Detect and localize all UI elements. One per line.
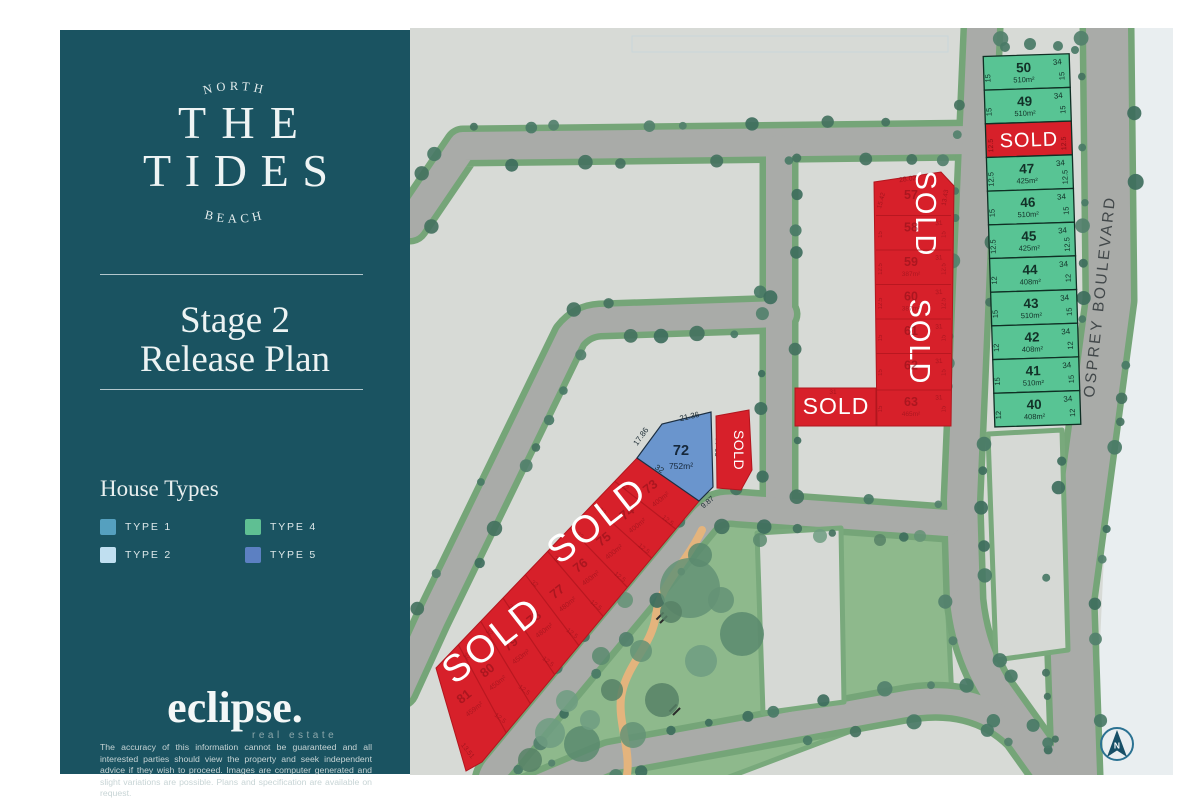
- lot-60-number: 60: [904, 290, 918, 304]
- park-tree-icon: [645, 683, 679, 717]
- lot-43-number: 43: [1023, 296, 1039, 311]
- tree-icon: [544, 415, 554, 425]
- park-tree-icon: [720, 612, 764, 656]
- tree-icon: [978, 568, 992, 582]
- tree-icon: [785, 156, 794, 165]
- tree-icon: [758, 370, 765, 377]
- tree-icon: [624, 329, 638, 343]
- lot-40-dim-front: 34: [1063, 394, 1073, 404]
- tree-icon: [754, 402, 767, 415]
- lot-50-number: 50: [1016, 60, 1031, 75]
- north-letter: N: [1114, 741, 1120, 751]
- lot-50-area: 510m²: [1013, 75, 1035, 85]
- tree-icon: [859, 153, 872, 166]
- tree-icon: [993, 653, 1007, 667]
- lot-44-dim-left: 12: [990, 276, 999, 285]
- logo-north-text: NORTH: [202, 79, 269, 97]
- tree-icon: [487, 521, 502, 536]
- lot-47-dim-right: 12.5: [1060, 170, 1069, 185]
- osprey-lot-column: 50510m²34151549510m²341515SOLD12.512.547…: [983, 54, 1081, 427]
- lot-48-sold-label: SOLD: [999, 129, 1058, 153]
- park-tree-icon: [556, 690, 578, 712]
- tree-icon: [763, 290, 777, 304]
- tree-icon: [790, 489, 805, 504]
- tree-icon: [850, 726, 861, 737]
- tree-icon: [470, 123, 478, 131]
- tree-icon: [817, 694, 829, 706]
- tree-icon: [1107, 440, 1122, 455]
- tree-icon: [710, 155, 723, 168]
- divider-line: [100, 274, 363, 275]
- park-tree-icon: [580, 710, 600, 730]
- lot-50-dim-right: 15: [1057, 72, 1066, 81]
- tree-icon: [757, 471, 769, 483]
- release-plan-page: { "sidebar": { "logo": {"arc_top": "NORT…: [0, 0, 1200, 804]
- legend-swatch-icon: [100, 547, 116, 563]
- tree-icon: [579, 781, 593, 795]
- lot-44-number: 44: [1022, 262, 1038, 277]
- lot-49-dim-left: 15: [984, 108, 993, 117]
- legend-label: TYPE 4: [270, 521, 317, 533]
- legend-swatch-icon: [245, 519, 261, 535]
- sold-label: SOLD: [909, 171, 941, 258]
- tree-icon: [591, 669, 601, 679]
- tree-icon: [1075, 218, 1090, 233]
- lot-42-dim-left: 12: [992, 343, 1001, 352]
- tree-icon: [1081, 199, 1088, 206]
- tree-icon: [981, 724, 994, 737]
- tree-icon: [537, 799, 548, 804]
- lot-41-area: 510m²: [1023, 378, 1045, 388]
- lot-46-number: 46: [1020, 195, 1036, 210]
- tree-icon: [714, 519, 729, 534]
- lot-59-dim-right: 12.5: [942, 263, 948, 275]
- house-types-heading: House Types: [100, 476, 219, 502]
- lot-49-dim-right: 15: [1058, 105, 1067, 114]
- tree-icon: [477, 478, 485, 486]
- lot-58-dim-front: 31: [935, 220, 943, 227]
- stage-title: Stage 2 Release Plan: [60, 301, 410, 379]
- tree-icon: [424, 219, 438, 233]
- sold-label: SOLD: [803, 393, 870, 419]
- park-tree-icon: [874, 534, 886, 546]
- tree-icon: [1089, 633, 1102, 646]
- tree-icon: [789, 343, 802, 356]
- tree-icon: [1057, 457, 1066, 466]
- sold-label: SOLD: [731, 430, 747, 470]
- tree-icon: [475, 558, 485, 568]
- lot-59-area: 387m²: [902, 271, 921, 278]
- lot-49-area: 510m²: [1014, 109, 1036, 119]
- lot-60-dim-left: 12.5: [878, 297, 884, 309]
- tree-icon: [415, 166, 429, 180]
- tree-icon: [792, 154, 801, 163]
- tree-icon: [567, 302, 581, 316]
- tree-icon: [790, 246, 803, 259]
- lot-44-area: 408m²: [1020, 277, 1042, 287]
- eclipse-logo: eclipse.: [60, 682, 410, 733]
- lot-47-dim-left: 12.5: [986, 172, 995, 187]
- tree-icon: [790, 224, 802, 236]
- lot-58-number: 58: [904, 221, 918, 235]
- lot-60-dim-right: 12.5: [942, 297, 948, 309]
- tree-icon: [1042, 737, 1053, 748]
- lot-60-dim-front: 31: [935, 289, 943, 296]
- lot-50-dim-front: 34: [1052, 57, 1062, 67]
- logo-the-text: THE: [178, 97, 298, 148]
- legend-swatch-icon: [245, 547, 261, 563]
- tree-icon: [730, 330, 738, 338]
- tree-icon: [877, 681, 892, 696]
- lot-42-number: 42: [1024, 329, 1039, 344]
- lot-45-dim-front: 34: [1058, 226, 1068, 236]
- legend-item-type-2: TYPE 2: [100, 547, 245, 563]
- tree-icon: [881, 118, 890, 127]
- eclipse-tagline: real estate: [252, 730, 337, 741]
- tree-icon: [1098, 555, 1107, 564]
- tree-icon: [411, 602, 425, 616]
- lot-45-number: 45: [1021, 228, 1037, 243]
- lot-42-dim-front: 34: [1061, 327, 1071, 337]
- lot-61-dim-right: 15: [942, 334, 948, 341]
- logo-beach-text: BEACH: [203, 208, 266, 226]
- tree-icon: [954, 100, 965, 111]
- tree-icon: [1071, 46, 1079, 54]
- lot-62-dim-right: 15: [942, 369, 948, 376]
- lot-43-dim-front: 34: [1060, 293, 1070, 303]
- lot-49-number: 49: [1017, 94, 1032, 109]
- lot-50-dim-left: 15: [983, 74, 992, 83]
- tree-icon: [906, 714, 921, 729]
- tree-icon: [822, 116, 834, 128]
- lot-42-dim-right: 12: [1066, 341, 1075, 350]
- tree-icon: [679, 122, 687, 130]
- tree-icon: [501, 776, 516, 791]
- stage-title-line1: Stage 2: [60, 301, 410, 340]
- tree-icon: [1044, 693, 1051, 700]
- tree-icon: [792, 189, 803, 200]
- lot-46-dim-right: 15: [1061, 206, 1070, 215]
- lot-61-dim-left: 15: [878, 334, 884, 341]
- lot-58-dim-left: 15: [878, 231, 884, 238]
- park-tree-icon: [914, 530, 926, 542]
- tree-icon: [742, 711, 753, 722]
- tree-icon: [959, 678, 973, 692]
- lot-71-sold: SOLD: [716, 410, 752, 490]
- tree-icon: [938, 595, 952, 609]
- lot-45-area: 425m²: [1018, 243, 1040, 253]
- lot-63-dim-left: 15: [878, 405, 884, 412]
- lot-63-number: 63: [904, 395, 918, 409]
- tree-icon: [978, 466, 987, 475]
- legend-label: TYPE 2: [125, 549, 172, 561]
- park-tree-icon: [564, 726, 600, 762]
- park-tree-icon: [518, 748, 542, 772]
- park-tree-icon: [592, 647, 610, 665]
- lot-62-dim-left: 15: [878, 369, 884, 376]
- tree-icon: [935, 501, 943, 509]
- lot-47-number: 47: [1019, 161, 1034, 176]
- tree-icon: [705, 719, 713, 727]
- tree-icon: [654, 329, 669, 344]
- legend-item-type-5: TYPE 5: [245, 547, 390, 563]
- tree-icon: [526, 122, 538, 134]
- tree-icon: [1027, 719, 1040, 732]
- divider-line: [100, 389, 363, 390]
- tree-icon: [978, 540, 990, 552]
- lot-58-dim-right: 15: [942, 231, 948, 238]
- lot-40-number: 40: [1026, 397, 1041, 412]
- lot-41-dim-right: 15: [1067, 375, 1076, 384]
- park-tree-icon: [601, 679, 623, 701]
- park-tree-icon: [813, 529, 827, 543]
- tree-icon: [532, 443, 541, 452]
- lot-43-dim-left: 15: [991, 310, 1000, 319]
- tree-icon: [505, 159, 518, 172]
- tree-icon: [1042, 669, 1050, 677]
- tree-icon: [1079, 259, 1088, 268]
- lot-47-dim-front: 34: [1056, 158, 1066, 168]
- tree-icon: [548, 120, 559, 131]
- tree-icon: [1103, 525, 1111, 533]
- sidebar-panel: NORTH THE TIDES BEACH Stage 2 Release Pl…: [60, 30, 410, 774]
- tree-icon: [609, 769, 622, 782]
- lot-40-dim-right: 12: [1068, 409, 1077, 418]
- tree-icon: [432, 569, 441, 578]
- lot-48-dim-left: 12.5: [988, 139, 995, 153]
- lot-72-number: 72: [673, 443, 689, 459]
- disclaimer-text: The accuracy of this information cannot …: [100, 742, 372, 800]
- lot-46-dim-left: 15: [988, 209, 997, 218]
- tree-icon: [864, 494, 874, 504]
- the-tides-logo: NORTH THE TIDES BEACH: [60, 30, 410, 240]
- lot-41-dim-left: 15: [993, 377, 1002, 386]
- lot-61-number: 61: [904, 324, 918, 338]
- tree-icon: [578, 155, 593, 170]
- tree-icon: [689, 326, 704, 341]
- tree-icon: [619, 632, 634, 647]
- park-tree-icon: [753, 533, 767, 547]
- lot-59-dim-front: 31: [935, 254, 943, 261]
- tree-icon: [1004, 738, 1013, 747]
- lot-44-dim-right: 12: [1064, 274, 1073, 283]
- tree-icon: [1077, 291, 1091, 305]
- lot-45-dim-right: 12.5: [1062, 237, 1071, 252]
- park-tree-icon: [660, 601, 682, 623]
- tree-icon: [1121, 361, 1130, 370]
- lot-63-dim-right: 15: [942, 405, 948, 412]
- lot-60-area: 387m²: [902, 306, 921, 313]
- lot-49-dim-front: 34: [1053, 91, 1063, 101]
- lot-42-area: 408m²: [1022, 344, 1044, 354]
- tree-icon: [1074, 31, 1089, 46]
- lot-57-number: 57: [904, 188, 918, 202]
- tree-icon: [756, 307, 769, 320]
- tree-icon: [953, 130, 962, 139]
- lot-46-area: 510m²: [1017, 210, 1039, 220]
- lot-63-dim-front: 31: [935, 394, 943, 401]
- tree-icon: [974, 501, 988, 515]
- park-tree-icon: [535, 718, 565, 748]
- legend-swatch-icon: [100, 519, 116, 535]
- lot-44-dim-front: 34: [1059, 259, 1069, 269]
- tree-icon: [803, 736, 813, 746]
- tree-icon: [1042, 574, 1050, 582]
- tree-icon: [793, 524, 802, 533]
- tree-icon: [1024, 38, 1036, 50]
- tree-icon: [937, 154, 949, 166]
- lot-40-dim-left: 12: [994, 411, 1003, 420]
- tree-icon: [615, 158, 626, 169]
- tree-icon: [1128, 174, 1144, 190]
- logo-tides-text: TIDES: [143, 145, 328, 196]
- tree-icon: [745, 117, 758, 130]
- tree-icon: [644, 120, 656, 132]
- tree-icon: [1078, 144, 1086, 152]
- tree-icon: [635, 765, 647, 777]
- tree-icon: [1053, 41, 1063, 51]
- tree-icon: [1005, 670, 1018, 683]
- legend-item-type-1: TYPE 1: [100, 519, 245, 535]
- tree-icon: [906, 154, 917, 165]
- lot-62-number: 62: [904, 359, 918, 373]
- lot-41-number: 41: [1025, 363, 1041, 378]
- stage-title-line2: Release Plan: [60, 340, 410, 379]
- park-inner-lot: [757, 528, 844, 713]
- tree-icon: [603, 298, 613, 308]
- park-tree-icon: [708, 587, 734, 613]
- legend-label: TYPE 5: [270, 549, 317, 561]
- tree-icon: [1079, 315, 1087, 323]
- lot-59-dim-left: 12.5: [878, 263, 884, 275]
- park-tree-icon: [685, 645, 717, 677]
- lot-61-dim-front: 31: [935, 323, 943, 330]
- tree-icon: [1094, 714, 1107, 727]
- lot-43-dim-right: 15: [1065, 307, 1074, 316]
- lot-59-number: 59: [904, 255, 918, 269]
- tree-icon: [427, 147, 441, 161]
- tree-icon: [575, 349, 586, 360]
- tree-icon: [757, 519, 772, 534]
- park-tree-icon: [630, 640, 652, 662]
- lot-63-area: 465m²: [902, 411, 921, 418]
- legend-label: TYPE 1: [125, 521, 172, 533]
- tree-icon: [1089, 598, 1101, 610]
- tree-icon: [977, 437, 992, 452]
- lot-41-dim-front: 34: [1062, 360, 1072, 370]
- house-types-legend: TYPE 1TYPE 2TYPE 4TYPE 5: [100, 513, 390, 569]
- tree-icon: [1078, 73, 1086, 81]
- tree-icon: [899, 532, 909, 542]
- future-lot: [988, 430, 1068, 660]
- lot-40-area: 408m²: [1024, 412, 1046, 422]
- lot-62-dim-front: 31: [935, 358, 943, 365]
- tree-icon: [829, 529, 836, 536]
- lot-48-dim-right: 12.5: [1061, 136, 1068, 150]
- tree-icon: [501, 775, 517, 791]
- tree-icon: [1000, 42, 1010, 52]
- park-tree-icon: [620, 722, 646, 748]
- lot-46-dim-front: 34: [1057, 192, 1067, 202]
- park-tree-icon: [688, 543, 712, 567]
- tree-icon: [927, 681, 935, 689]
- tree-icon: [1116, 418, 1125, 427]
- lot-45-dim-left: 12.5: [988, 239, 997, 254]
- legend-item-type-4: TYPE 4: [245, 519, 390, 535]
- tree-icon: [548, 760, 555, 767]
- tree-icon: [794, 437, 802, 445]
- tree-icon: [1052, 481, 1065, 494]
- lot-72-area: 752m²: [669, 461, 693, 471]
- lot-47-area: 425m²: [1016, 176, 1038, 186]
- tree-icon: [1127, 106, 1141, 120]
- tree-icon: [666, 726, 675, 735]
- tree-icon: [559, 386, 568, 395]
- tree-icon: [767, 706, 779, 718]
- tree-icon: [949, 636, 958, 645]
- lot-43-area: 510m²: [1021, 311, 1043, 321]
- tree-icon: [1116, 393, 1127, 404]
- tree-icon: [520, 459, 533, 472]
